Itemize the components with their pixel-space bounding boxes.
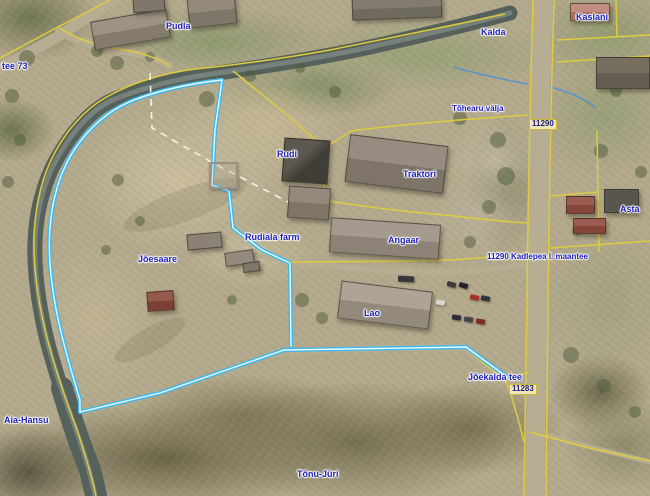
- map-label-traktori: Traktori: [403, 170, 436, 179]
- vehicle: [464, 316, 474, 322]
- selected-parcel-east-edge[interactable]: [212, 80, 291, 346]
- main-road: [535, 0, 543, 496]
- building-rudi-dark: [282, 137, 331, 184]
- map-label-partial-address: i tee 73: [0, 62, 28, 71]
- farm-driveway: [296, 263, 529, 272]
- building-farm-shed-a: [186, 232, 222, 251]
- building-topright-dark: [596, 57, 650, 89]
- building-asta-red-b: [573, 218, 606, 234]
- map-label-road-name: 11290 Kadlepea l. maantee: [487, 253, 588, 261]
- map-label-rudi: Rudi: [277, 150, 297, 159]
- map-vector-overlay: [0, 0, 650, 496]
- ruin-enclosure: [209, 162, 238, 189]
- map-label-tonu-juri: Tõnu-Jüri: [297, 470, 339, 479]
- building-topcenter: [352, 0, 443, 21]
- road-number-sign-south: 11283: [509, 384, 537, 395]
- building-topleft-b: [187, 0, 238, 28]
- aerial-cadastral-map[interactable]: Pudla Kalda Kaslani i tee 73 Tõhearu väl…: [0, 0, 650, 496]
- map-label-lao: Lao: [364, 309, 380, 318]
- map-label-tohearu-valja: Tõhearu välja: [452, 105, 504, 113]
- map-label-joesaare: Jõesaare: [138, 255, 177, 264]
- building-joesaare-red-house: [146, 290, 174, 312]
- cadastral-boundary-lines: [0, 0, 650, 496]
- map-label-asta: Asta: [620, 205, 640, 214]
- map-label-angaar: Angaar: [388, 236, 419, 245]
- selected-parcel-south-edge[interactable]: [80, 347, 507, 412]
- vehicle: [452, 314, 462, 320]
- map-label-aia-hansu: Aia-Hansu: [4, 416, 49, 425]
- building-rudi-b: [287, 186, 331, 221]
- stream-line: [453, 67, 596, 108]
- vehicle-truck: [398, 276, 414, 283]
- map-label-kaslani: Kaslani: [576, 13, 608, 22]
- road-number-sign-north: 11290: [529, 119, 557, 130]
- map-label-rudiala-farm: Rudiala farm: [245, 233, 300, 242]
- map-label-kalda: Kalda: [481, 28, 506, 37]
- building-asta-red-a: [566, 196, 595, 214]
- building-topleft-c: [133, 0, 166, 13]
- map-label-pudla: Pudla: [166, 22, 191, 31]
- vehicle: [476, 318, 486, 324]
- map-label-joekalda-tee: Jõekalda tee: [468, 373, 522, 382]
